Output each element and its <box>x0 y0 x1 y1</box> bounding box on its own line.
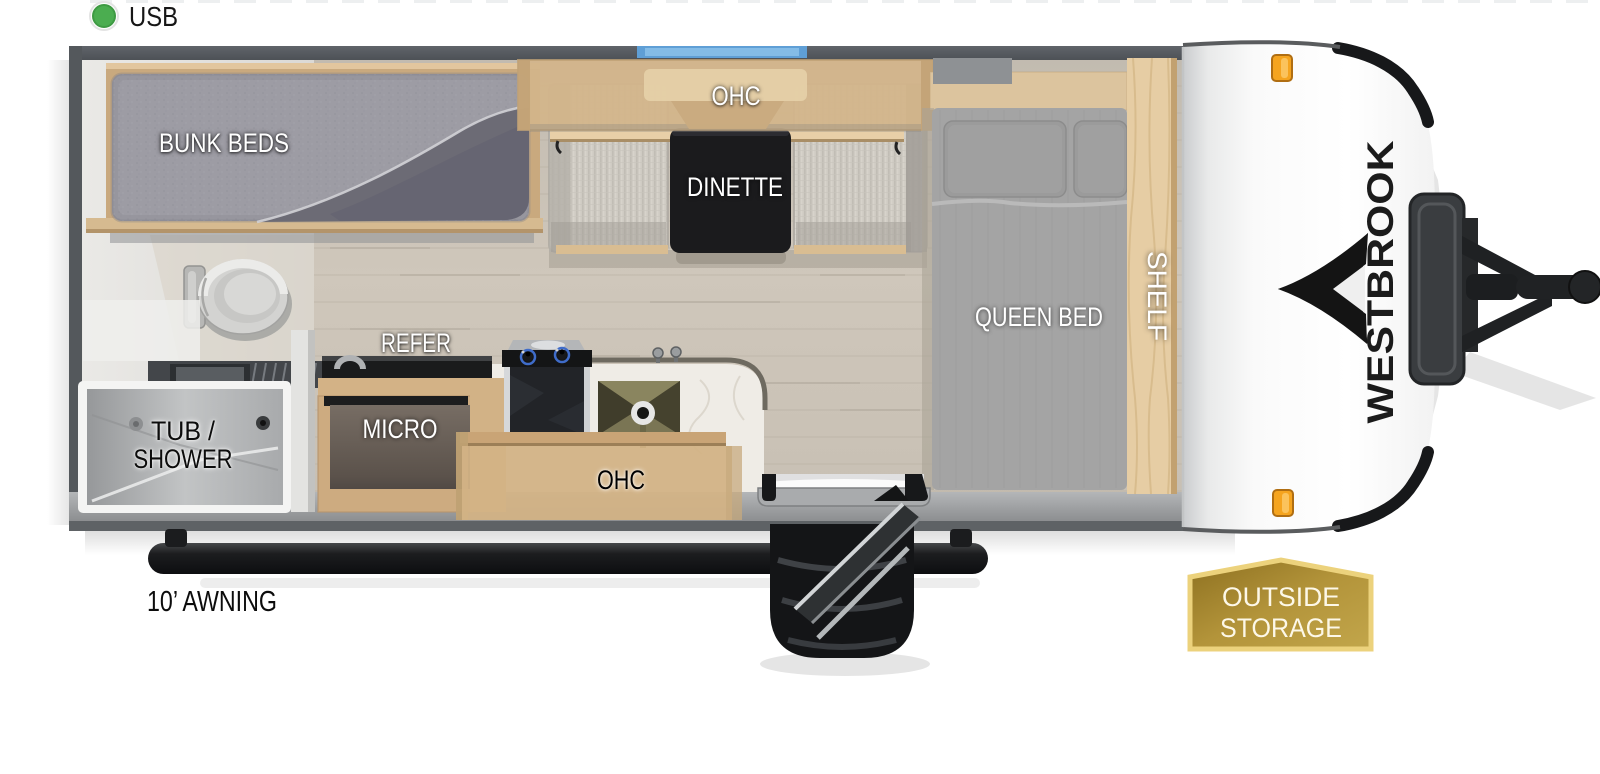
svg-text:USB: USB <box>129 1 178 32</box>
svg-text:QUEEN BED: QUEEN BED <box>975 302 1103 332</box>
svg-text:MICRO: MICRO <box>363 414 438 444</box>
svg-text:REFER: REFER <box>381 328 451 358</box>
svg-text:OHC: OHC <box>597 465 645 495</box>
svg-text:DINETTE: DINETTE <box>687 172 783 202</box>
svg-text:SHELF: SHELF <box>1142 251 1172 341</box>
svg-text:WESTBROOK: WESTBROOK <box>1360 140 1401 423</box>
svg-text:OHC: OHC <box>712 81 761 111</box>
svg-text:BUNK BEDS: BUNK BEDS <box>159 128 289 158</box>
svg-text:TUB /: TUB / <box>151 416 215 446</box>
svg-text:STORAGE: STORAGE <box>1220 613 1342 643</box>
svg-text:SHOWER: SHOWER <box>134 444 233 474</box>
svg-text:OUTSIDE: OUTSIDE <box>1222 582 1340 612</box>
svg-text:10’ AWNING: 10’ AWNING <box>147 586 277 618</box>
